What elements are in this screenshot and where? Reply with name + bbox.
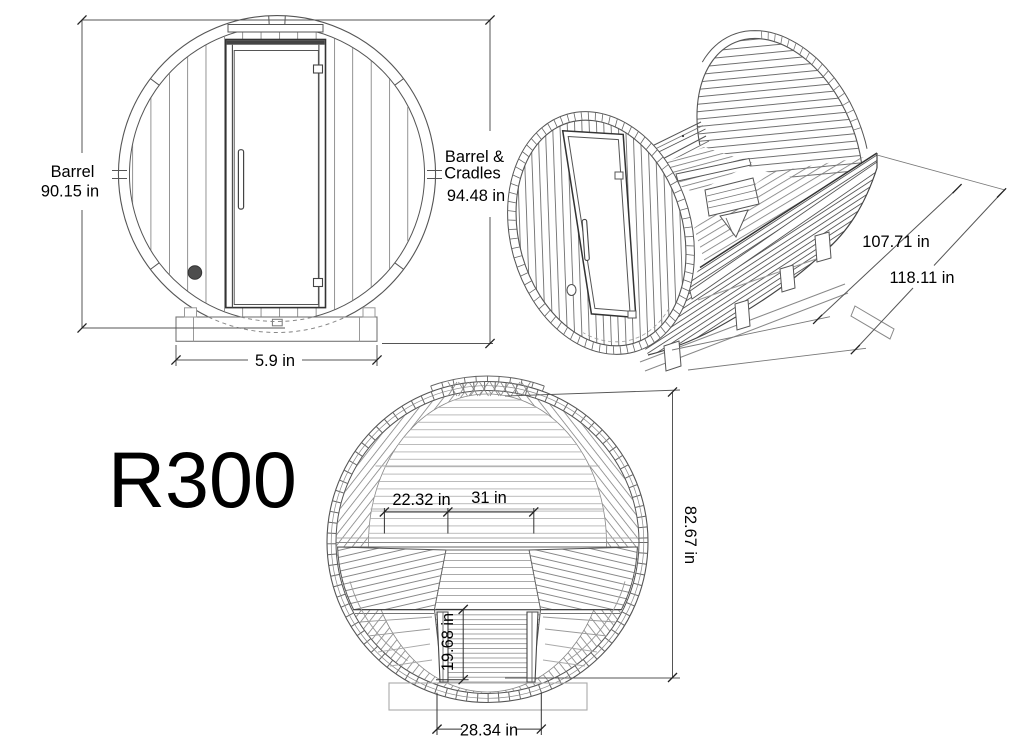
svg-text:R300: R300 [108, 435, 297, 524]
svg-text:19.68 in: 19.68 in [439, 613, 457, 671]
svg-text:90.15 in: 90.15 in [41, 183, 99, 201]
svg-text:82.67 in: 82.67 in [681, 506, 699, 564]
svg-text:94.48 in: 94.48 in [447, 187, 505, 205]
svg-text:107.71 in: 107.71 in [862, 233, 929, 251]
svg-text:118.11 in: 118.11 in [889, 269, 954, 287]
svg-text:28.34 in: 28.34 in [460, 722, 518, 740]
svg-text:Barrel &: Barrel & [445, 148, 504, 166]
svg-text:5.9 in: 5.9 in [255, 352, 295, 370]
svg-text:31 in: 31 in [471, 489, 507, 507]
svg-text:22.32 in: 22.32 in [392, 491, 450, 509]
svg-text:Barrel: Barrel [51, 163, 95, 181]
svg-text:Cradles: Cradles [444, 165, 500, 183]
